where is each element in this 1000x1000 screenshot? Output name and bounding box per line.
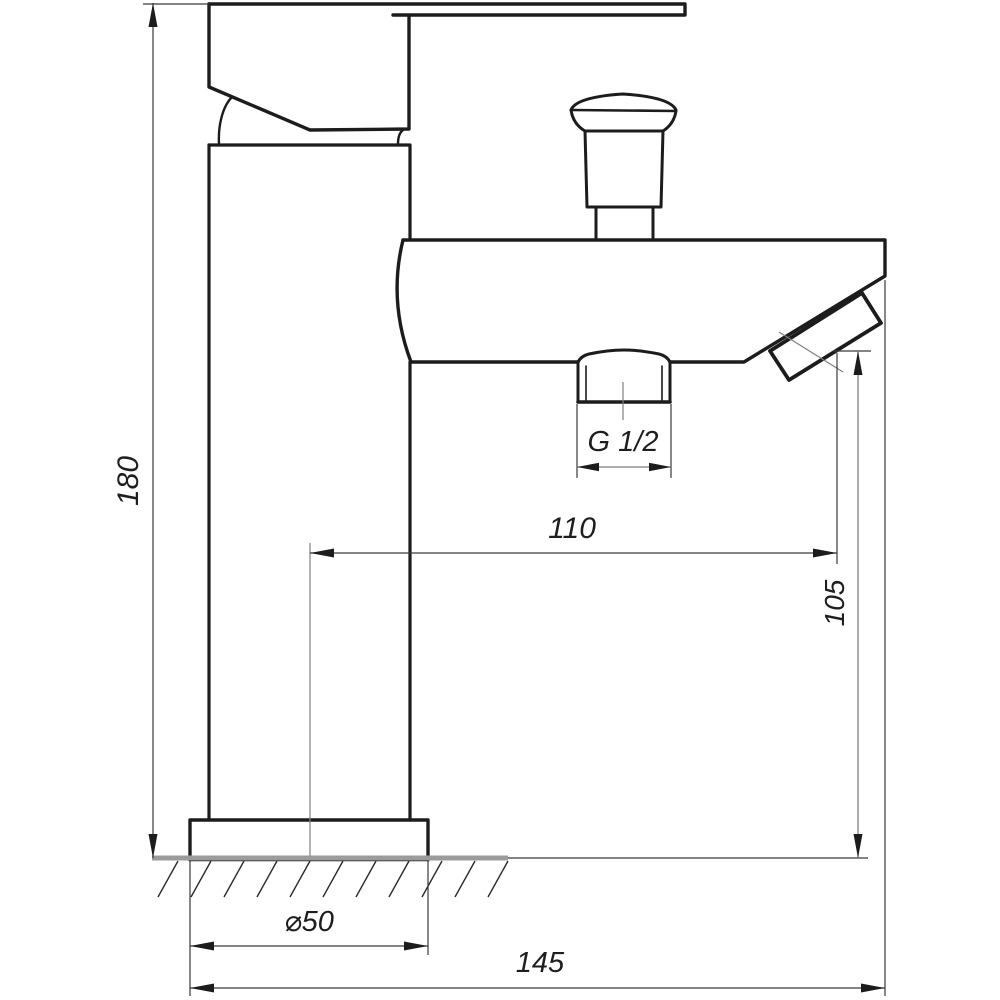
diverter-knob xyxy=(571,94,676,238)
ground-hatching xyxy=(158,861,508,897)
dim-label-reach: 110 xyxy=(548,512,596,545)
arrow-left-icon xyxy=(190,942,214,951)
arrow-left-icon xyxy=(190,984,214,993)
dim-label-base-diameter: ⌀50 xyxy=(284,906,334,938)
arrow-up-icon xyxy=(854,351,863,375)
arrow-left-icon xyxy=(310,549,334,558)
dim-label-height: 180 xyxy=(112,456,145,506)
arrow-down-icon xyxy=(149,834,158,858)
dim-label-length: 145 xyxy=(516,947,565,979)
technical-drawing-canvas: 180 110 105 145 ⌀50 G 1/2 xyxy=(0,0,1000,1000)
dimension-labels: 180 110 105 145 ⌀50 G 1/2 xyxy=(112,426,850,979)
arrow-right-icon xyxy=(649,463,671,471)
arrow-down-icon xyxy=(854,834,863,858)
dimension-lines xyxy=(149,3,886,993)
arrow-left-icon xyxy=(577,463,599,471)
dim-label-thread: G 1/2 xyxy=(588,426,659,458)
arrow-up-icon xyxy=(149,3,158,27)
ground-surface xyxy=(152,858,868,897)
spout-body xyxy=(397,240,885,362)
arrow-right-icon xyxy=(813,549,837,558)
thread-connector xyxy=(578,362,670,402)
arrow-right-icon xyxy=(404,942,428,951)
faucet-dimension-drawing: 180 110 105 145 ⌀50 G 1/2 xyxy=(0,0,1000,1000)
arrow-right-icon xyxy=(861,984,885,993)
handle-lever xyxy=(209,4,685,144)
dim-label-outlet-height: 105 xyxy=(819,579,850,626)
base-flange xyxy=(190,820,428,860)
